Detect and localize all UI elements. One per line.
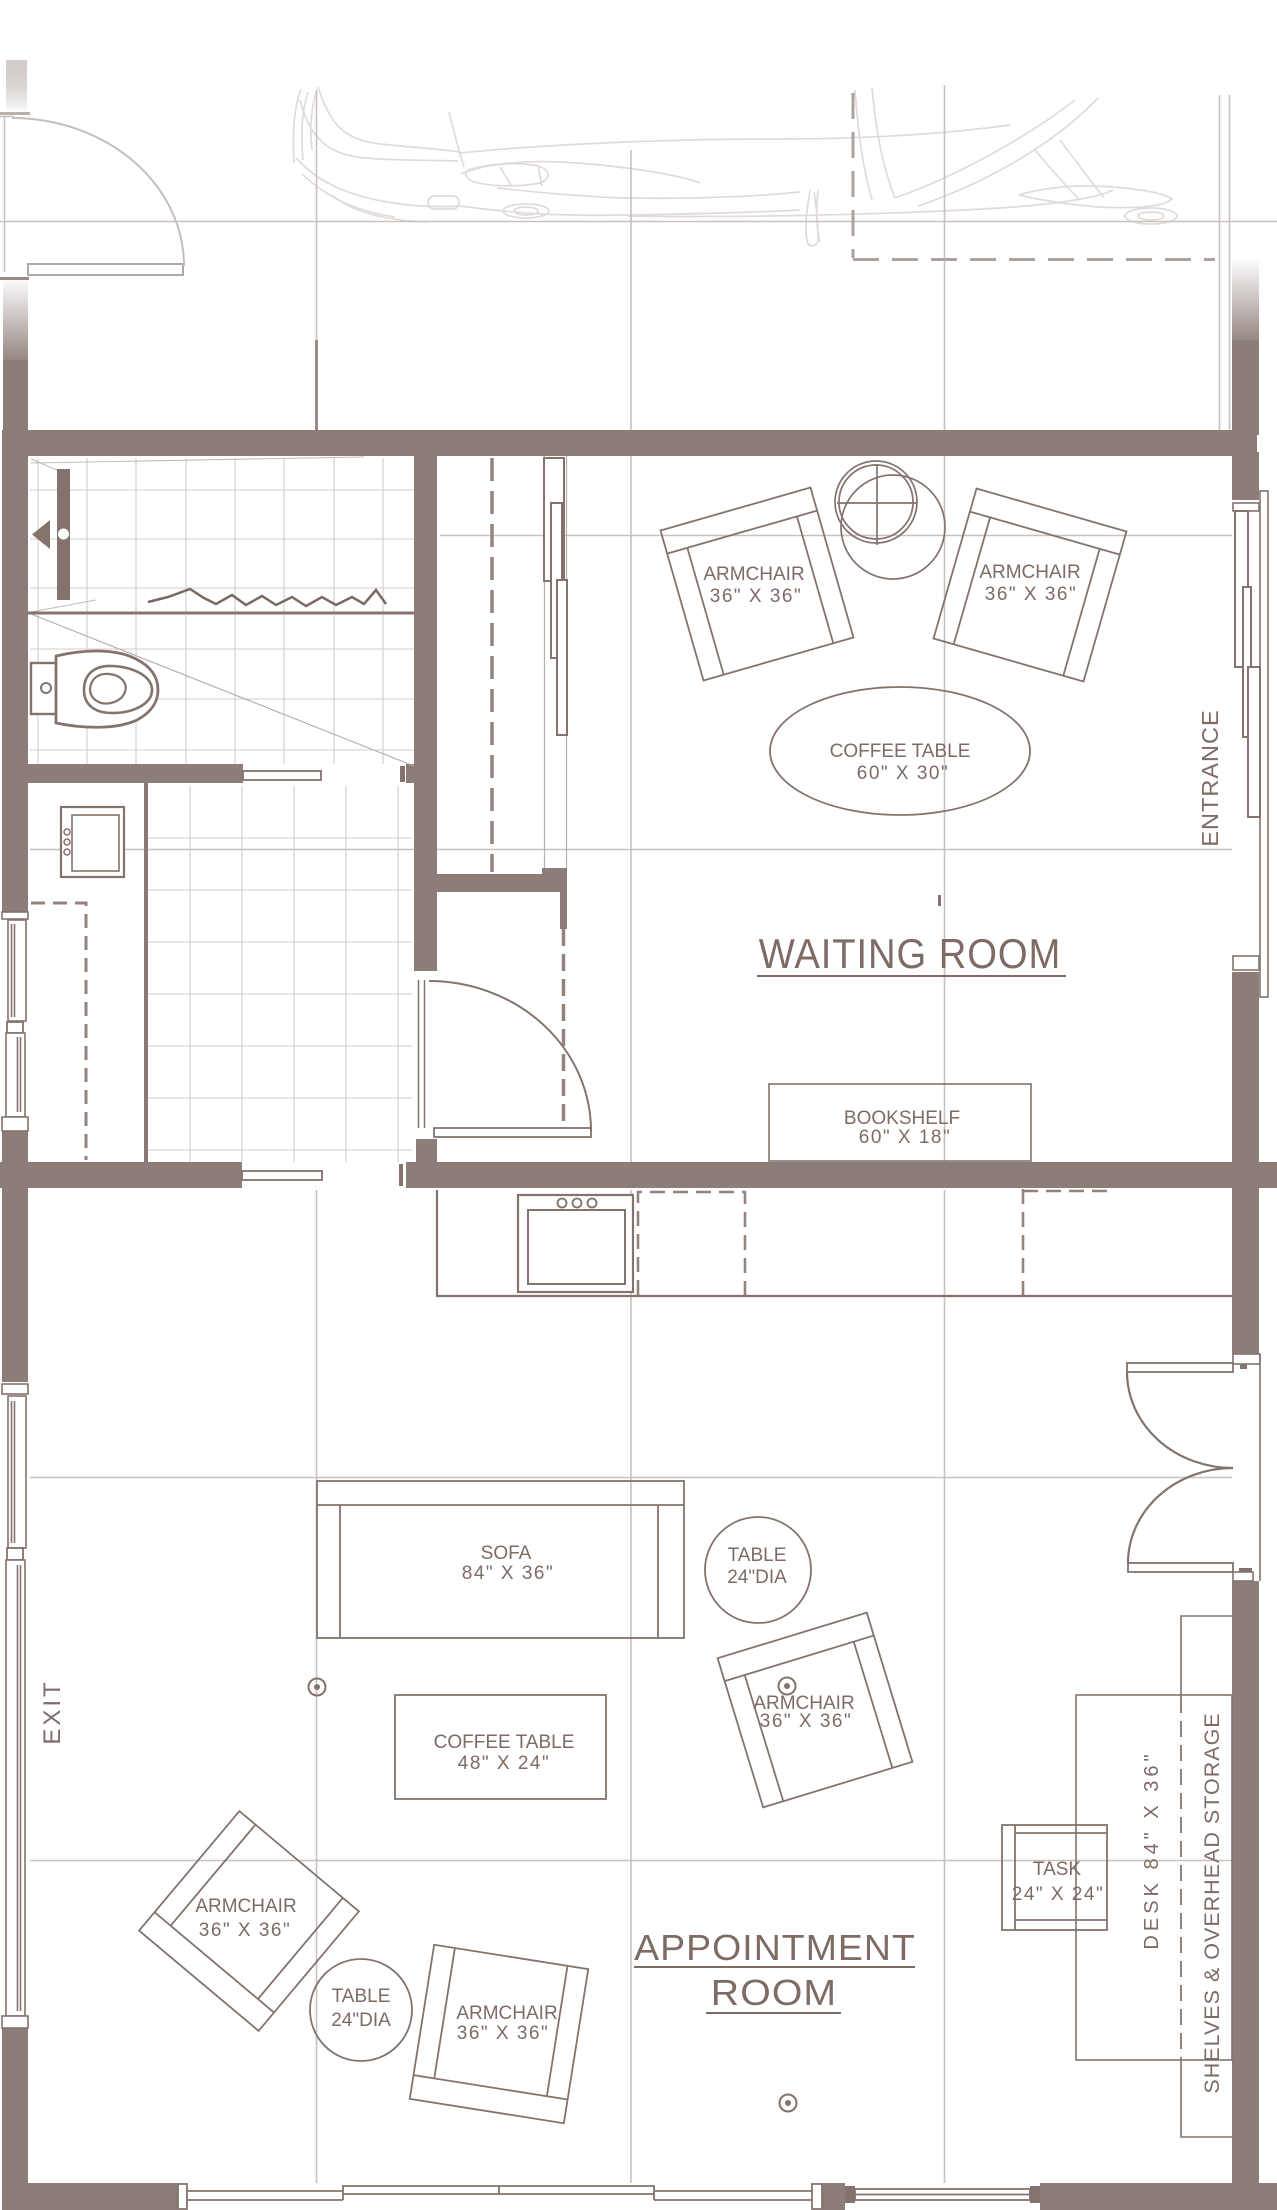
svg-text:ROOM: ROOM [711, 1972, 837, 2012]
svg-text:ARMCHAIR: ARMCHAIR [979, 562, 1080, 583]
svg-text:COFFEE TABLE: COFFEE TABLE [830, 741, 971, 762]
svg-text:36" X 36": 36" X 36" [760, 1711, 853, 1732]
svg-text:24" X 24": 24" X 24" [1012, 1884, 1105, 1905]
svg-text:SOFA: SOFA [481, 1543, 532, 1564]
svg-text:TABLE: TABLE [332, 1986, 391, 2007]
svg-text:COFFEE TABLE: COFFEE TABLE [434, 1732, 575, 1753]
svg-text:ENTRANCE: ENTRANCE [1197, 709, 1223, 846]
svg-text:SHELVES & OVERHEAD STORAGE: SHELVES & OVERHEAD STORAGE [1200, 1712, 1224, 2093]
svg-text:24"DIA: 24"DIA [331, 2010, 391, 2031]
svg-text:60" X 18": 60" X 18" [859, 1127, 952, 1148]
svg-text:36" X 36": 36" X 36" [199, 1920, 292, 1941]
svg-text:BOOKSHELF: BOOKSHELF [844, 1108, 960, 1129]
svg-text:36" X 36": 36" X 36" [985, 584, 1078, 605]
svg-text:APPOINTMENT: APPOINTMENT [634, 1928, 916, 1968]
svg-text:WAITING ROOM: WAITING ROOM [759, 930, 1061, 977]
svg-text:ARMCHAIR: ARMCHAIR [195, 1896, 296, 1917]
svg-text:60" X 30": 60" X 30" [857, 763, 950, 784]
svg-text:TABLE: TABLE [728, 1545, 787, 1566]
svg-text:TASK: TASK [1033, 1859, 1082, 1880]
svg-text:84" X 36": 84" X 36" [462, 1563, 555, 1584]
svg-text:EXIT: EXIT [39, 1679, 66, 1744]
svg-text:36" X 36": 36" X 36" [457, 2023, 550, 2044]
svg-text:36" X 36": 36" X 36" [710, 586, 803, 607]
svg-text:DESK 84" X 36": DESK 84" X 36" [1141, 1750, 1163, 1949]
svg-text:ARMCHAIR: ARMCHAIR [456, 2003, 557, 2024]
svg-text:24"DIA: 24"DIA [727, 1567, 787, 1588]
svg-text:ARMCHAIR: ARMCHAIR [703, 564, 804, 585]
svg-text:48" X 24": 48" X 24" [458, 1753, 551, 1774]
